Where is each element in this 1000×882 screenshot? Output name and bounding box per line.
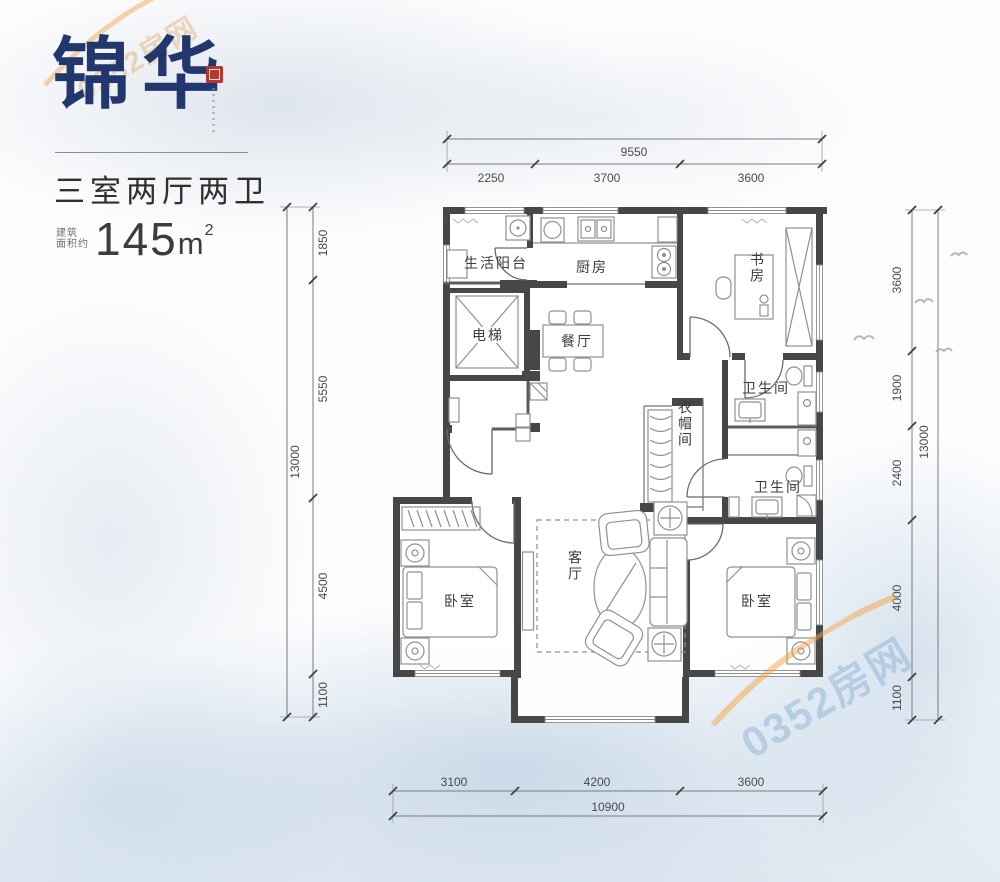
dim-left-seg: 1850	[316, 229, 330, 256]
bird-icon	[951, 253, 967, 257]
dim-left-seg: 1100	[316, 682, 330, 708]
label-study: 书房	[749, 252, 765, 284]
floorplan-svg: 生活阳台 厨房 书房 电梯 餐厅 卫生间 卫生间 衣帽间 客厅 卧室 卧室 95…	[0, 0, 1000, 882]
side-table-fan	[648, 628, 681, 661]
side-table-fan	[654, 502, 687, 535]
floorplan-page: 0352房网 锦华 三室两厅两卫 建筑 面积约 145 m 2	[0, 0, 1000, 882]
bathtub	[798, 392, 816, 425]
dim-left-seg: 4500	[316, 572, 330, 599]
dim-right-total: 13000	[917, 425, 931, 459]
label-balcony: 生活阳台	[464, 255, 528, 271]
fridge	[658, 217, 677, 242]
tv-cabinet	[523, 552, 534, 630]
dim-bottom-seg: 3600	[738, 775, 765, 789]
label-living: 客厅	[567, 549, 583, 582]
bird-icon	[915, 299, 933, 303]
label-dining: 餐厅	[561, 333, 593, 349]
nightstand	[401, 638, 429, 664]
dim-right-seg: 2400	[890, 459, 904, 486]
birds	[854, 253, 967, 353]
lobby-cabinet	[449, 398, 459, 422]
dim-right-seg: 3600	[890, 266, 904, 293]
dim-bottom-total: 10900	[591, 800, 625, 814]
nightstand	[787, 638, 815, 664]
label-bedroom-left: 卧室	[444, 593, 476, 609]
stove	[652, 246, 676, 278]
dim-left-seg: 5550	[316, 375, 330, 402]
hall-cabinet	[516, 414, 530, 427]
bath-sink	[752, 497, 782, 519]
dim-top-seg: 3600	[738, 171, 765, 185]
dim-left-total: 13000	[288, 445, 302, 479]
label-cloakroom: 衣帽间	[677, 400, 693, 448]
label-elevator: 电梯	[472, 327, 504, 343]
label-kitchen: 厨房	[576, 259, 608, 275]
dim-right-seg: 4000	[890, 584, 904, 611]
label-bath-bottom: 卫生间	[754, 479, 802, 495]
dim-top-total: 9550	[621, 145, 648, 159]
sofa	[650, 538, 687, 626]
dimension-bottom: 3100 4200 3600 10900	[389, 775, 827, 823]
kitchen-sink	[578, 217, 614, 241]
bird-icon	[854, 336, 874, 340]
nightstand	[401, 540, 429, 566]
bath-sink	[735, 399, 765, 423]
dimension-left: 13000 1850 5550 4500 1100	[280, 203, 330, 721]
label-bath-top: 卫生间	[742, 380, 790, 396]
dim-right-seg: 1100	[890, 685, 904, 711]
nightstand	[787, 538, 815, 564]
bath-cabinet	[729, 497, 739, 517]
label-bedroom-right: 卧室	[741, 593, 773, 609]
dimension-right: 3600 1900 2400 4000 1100 13000	[890, 206, 945, 724]
dim-bottom-seg: 4200	[584, 775, 611, 789]
armchair	[598, 510, 650, 557]
dim-right-seg: 1900	[890, 374, 904, 401]
dimension-top: 9550 2250 3700 3600	[443, 131, 826, 185]
dim-top-seg: 3700	[594, 171, 621, 185]
dim-top-seg: 2250	[478, 171, 505, 185]
shower-strip	[798, 430, 816, 456]
dim-bottom-seg: 3100	[441, 775, 468, 789]
hall-cabinet	[516, 428, 530, 441]
